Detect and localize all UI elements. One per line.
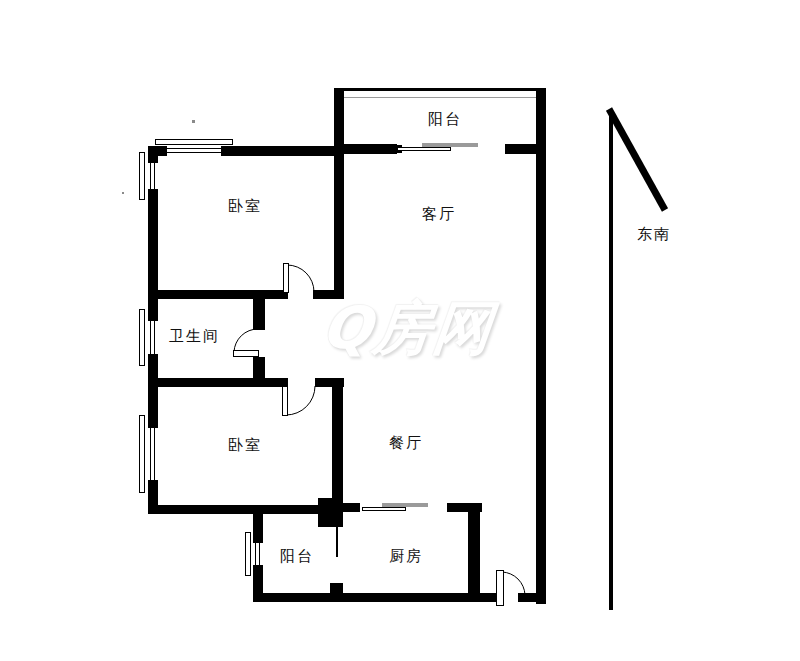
sliding-door-kitchen-panel-a	[362, 507, 406, 511]
room-label-balcony-top: 阳台	[428, 112, 462, 127]
door-bedroom-bottom-arc	[286, 386, 315, 415]
compass-label: 东南	[637, 227, 671, 242]
door-entry-arc	[502, 572, 525, 595]
door-bedroom-top-leaf	[283, 263, 289, 293]
room-label-dining-room: 餐厅	[389, 436, 423, 451]
compass-arrow	[609, 109, 665, 210]
room-label-bedroom-bottom: 卧室	[228, 438, 262, 453]
door-bedroom-top-arc	[287, 265, 314, 292]
door-bathroom-arc	[234, 329, 258, 352]
room-label-kitchen: 厨房	[389, 549, 423, 564]
door-bathroom-leaf	[233, 350, 259, 357]
sliding-door-kitchen-panel-b	[382, 503, 428, 507]
room-label-living-room: 客厅	[422, 207, 456, 222]
room-label-bedroom-top: 卧室	[228, 199, 262, 214]
sliding-door-balcony-panel-a	[397, 147, 451, 151]
sliding-door-balcony-panel-b	[422, 143, 478, 147]
room-label-bathroom: 卫生间	[169, 329, 220, 344]
room-label-balcony-bottom: 阳台	[280, 549, 314, 564]
floorplan-canvas: Q房网	[0, 0, 800, 661]
door-bedroom-bottom-leaf	[282, 386, 288, 416]
door-entry-leaf	[496, 570, 504, 606]
